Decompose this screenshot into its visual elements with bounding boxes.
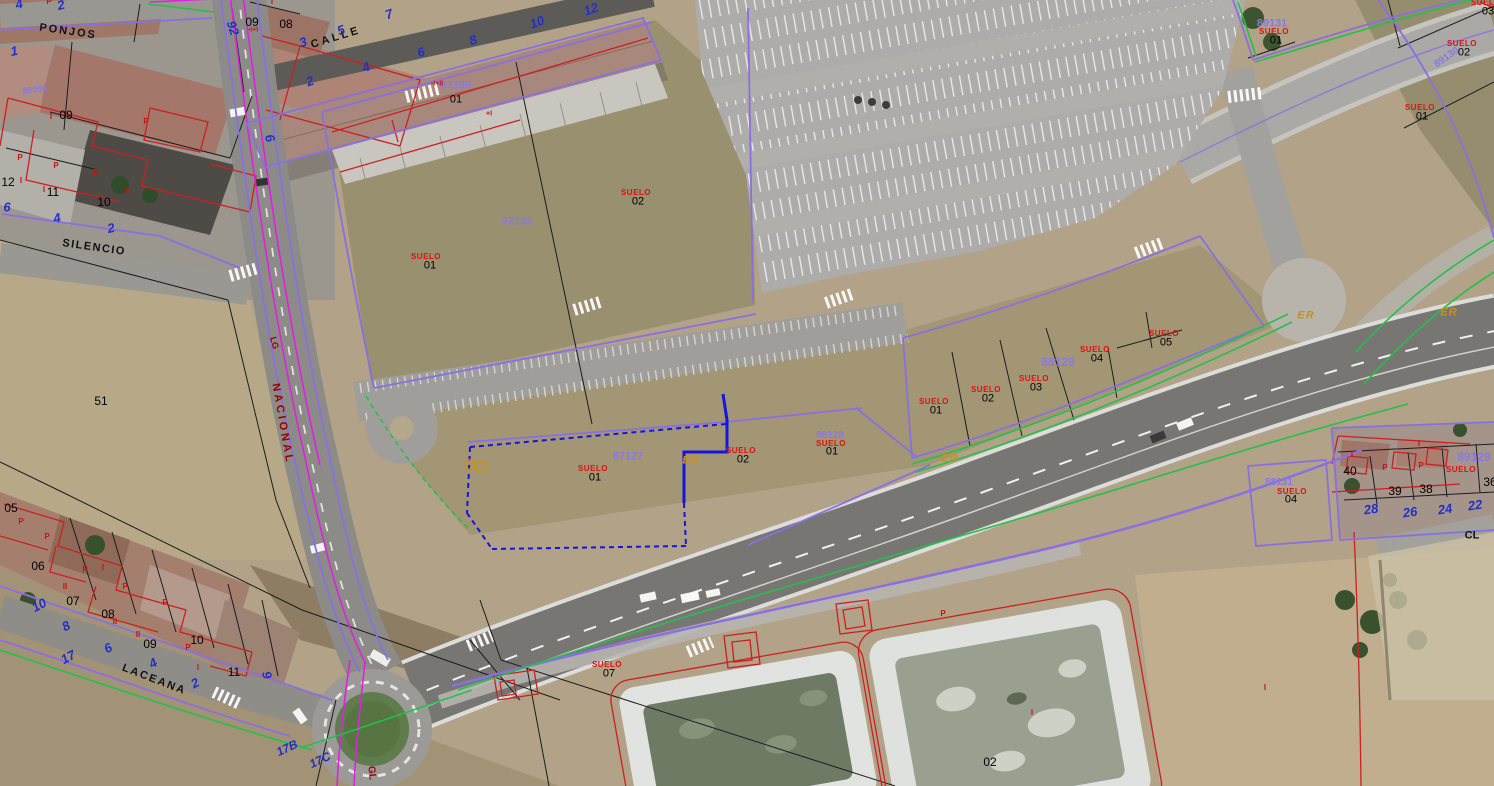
- road-ponjos: [0, 4, 215, 16]
- pond-east: [867, 597, 1154, 786]
- aerial-base: [0, 0, 1494, 786]
- map-viewport[interactable]: PONJOSSILENCIOCALLELACEANACLNACIONALLGGL…: [0, 0, 1494, 786]
- turning-bulb: [1262, 258, 1346, 342]
- pond-west: [617, 648, 879, 786]
